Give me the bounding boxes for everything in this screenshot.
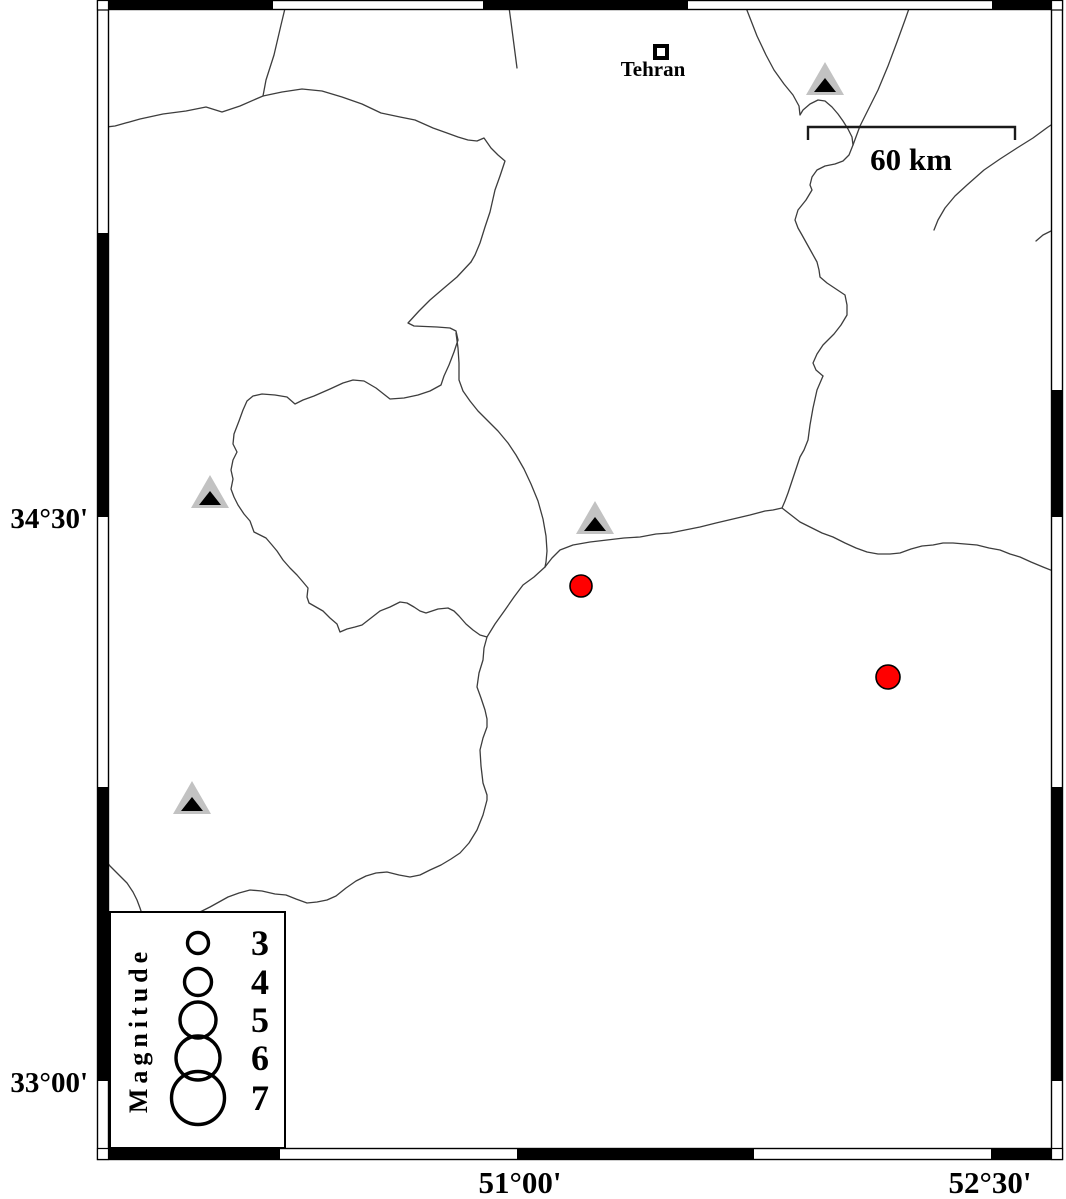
earthquake-marker: [570, 575, 592, 597]
magnitude-legend: Magnitude 34567: [110, 912, 285, 1148]
axis-label-lon-2: 52°30': [948, 1165, 1031, 1199]
frame-black-segment: [1052, 787, 1063, 1081]
frame-black-segment: [98, 233, 109, 517]
frame-corner: [1052, 1, 1063, 11]
city-label: Tehran: [621, 57, 686, 81]
frame-corner: [98, 1149, 109, 1160]
frame-black-segment: [517, 1149, 754, 1160]
axis-label-lat-2: 33°00': [10, 1067, 88, 1099]
legend-title: Magnitude: [124, 947, 153, 1113]
legend-magnitude-label: 7: [251, 1078, 269, 1118]
frame-corner: [1052, 1149, 1063, 1160]
frame-black-segment: [1052, 390, 1063, 517]
frame-corner: [98, 1, 109, 11]
frame-black-segment: [98, 787, 109, 1081]
frame-black-segment: [991, 1149, 1051, 1160]
legend-magnitude-label: 4: [251, 962, 269, 1002]
frame-black-segment: [483, 1, 688, 11]
legend-magnitude-label: 5: [251, 1000, 269, 1040]
legend-magnitude-label: 3: [251, 923, 269, 963]
frame-black-segment: [109, 1, 273, 11]
axis-label-lat-1: 34°30': [10, 503, 88, 535]
axis-label-lon-1: 51°00': [478, 1165, 561, 1199]
frame-black-segment: [992, 1, 1051, 11]
scale-bar-label: 60 km: [870, 142, 952, 177]
earthquake-marker: [876, 665, 900, 689]
legend-magnitude-label: 6: [251, 1038, 269, 1078]
seismicity-map-page: 60 km Tehran Magnitude 34567 34°30' 33°0…: [0, 0, 1066, 1199]
frame-black-segment: [109, 1149, 280, 1160]
seismicity-map: 60 km Tehran Magnitude 34567 34°30' 33°0…: [0, 0, 1066, 1199]
